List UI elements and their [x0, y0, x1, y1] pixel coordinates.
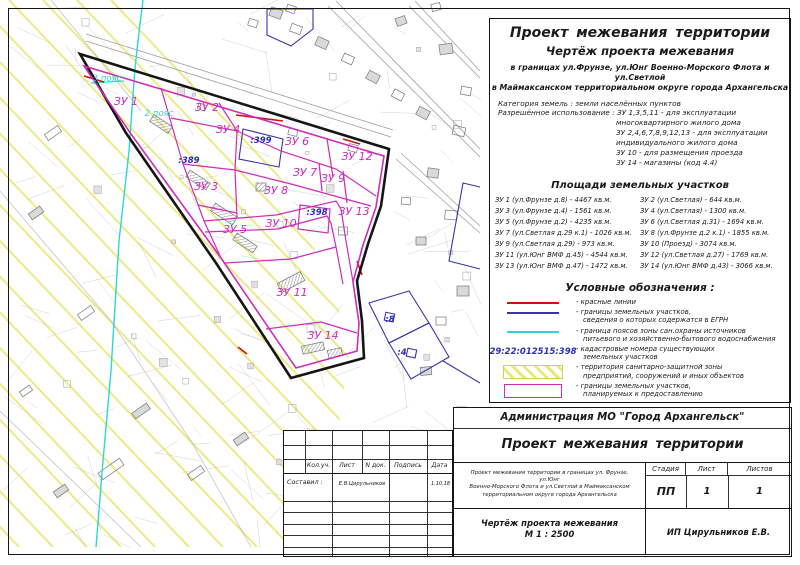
map-label-zu7: ЗУ 7: [293, 166, 317, 179]
date: 1.10.18: [428, 481, 453, 487]
legend-item: - красные линии: [490, 298, 790, 306]
permitted-use-line: ЗУ 2,4,6,7,8,9,12,13 - для эксплуатации: [498, 128, 790, 138]
map-label-zone2: 2 пояс: [145, 109, 174, 119]
page-subtitle: Чертёж проекта межевания: [490, 44, 790, 58]
areas-column-right: ЗУ 2 (ул.Светлая) - 644 кв.м.ЗУ 4 (ул.Св…: [640, 195, 785, 272]
map-label-zu4: ЗУ 4: [216, 123, 240, 136]
stage-value: ПП: [646, 476, 687, 508]
stage-grid: Стадия Лист Листов ПП 1 1: [646, 462, 791, 509]
sanitary-zone-swatch: [503, 365, 563, 379]
project-title: Проект межевания территории: [454, 428, 791, 463]
author-name: Е.В.Цирульников: [335, 481, 389, 487]
planned-parcel-swatch: [504, 384, 562, 398]
blue-line-swatch: [507, 312, 559, 314]
legend-item: - граница поясов зоны сан.охраны источни…: [490, 327, 790, 343]
col-header: Кол.уч.: [305, 462, 332, 469]
legend-title: Условные обозначения :: [490, 282, 790, 294]
permitted-use-line: ЗУ 10 - для размещения проезда: [498, 148, 790, 158]
firm-name: ИП Цирульников Е.В.: [646, 509, 791, 555]
map-label-zu8: ЗУ 8: [264, 184, 288, 197]
area-row: ЗУ 4 (ул.Светлая) - 1300 кв.м.: [640, 206, 785, 217]
area-row: ЗУ 10 (Проезд) - 3074 кв.м.: [640, 239, 785, 250]
areas-title: Площади земельных участков: [490, 180, 790, 191]
map-label-zu14: ЗУ 14: [307, 329, 338, 342]
area-row: ЗУ 1 (ул.Фрунзе д.8) - 4467 кв.м.: [495, 195, 640, 206]
col-header: Дата: [427, 462, 452, 469]
permitted-use-line: многоквартирного жилого дома: [498, 118, 790, 128]
map-label-zu10: ЗУ 10: [265, 217, 296, 230]
map-label-cad389: :389: [178, 156, 199, 166]
area-row: ЗУ 9 (ул.Светлая д.29) - 973 кв.м.: [495, 239, 640, 250]
cadastral-number-sample: 29:22:012515:398: [489, 347, 576, 357]
map-label-zu6: ЗУ 6: [285, 135, 309, 148]
organization: Администрация МО "Город Архангельск": [454, 408, 791, 429]
map-label-cad398: :398: [306, 208, 327, 218]
map-label-zu12: ЗУ 12: [341, 150, 372, 163]
page-title: Проект межевания территории: [490, 25, 790, 41]
sheets-label: Листов: [728, 462, 791, 476]
permitted-use-line: Разрешённое использование : ЗУ 1,3,5,11 …: [498, 108, 790, 118]
col-header: N док.: [362, 462, 389, 469]
map-label-zu13: ЗУ 13: [338, 205, 369, 218]
area-row: ЗУ 8 (ул.Фрунзе д.2 к.1) - 1855 кв.м.: [640, 228, 785, 239]
map-label-cad4: :4: [397, 348, 406, 358]
map-label-zu9: ЗУ 9: [321, 172, 345, 185]
area-row: ЗУ 5 (ул.Фрунзе д.2) - 4235 кв.м.: [495, 217, 640, 228]
area-row: ЗУ 7 (ул.Светлая д.29 к.1) - 1026 кв.м.: [495, 228, 640, 239]
project-description: Проект межевания территории в границах у…: [454, 462, 646, 509]
area-row: ЗУ 2 (ул.Светлая) - 644 кв.м.: [640, 195, 785, 206]
made-label: Составил :: [287, 478, 323, 486]
area-row: ЗУ 13 (ул.Юнг ВМФ д.47) - 1472 кв.м.: [495, 261, 640, 272]
map-label-zone3: 3 пояс: [93, 74, 122, 84]
drawing-name: Чертёж проекта межевания М 1 : 2500: [454, 509, 646, 555]
areas-column-left: ЗУ 1 (ул.Фрунзе д.8) - 4467 кв.м.ЗУ 3 (у…: [495, 195, 640, 272]
map-label-zu2: ЗУ 2: [195, 101, 219, 114]
area-row: ЗУ 14 (ул.Юнг ВМФ д.43) - 3066 кв.м.: [640, 261, 785, 272]
titleblock-main: Администрация МО "Город Архангельск" Про…: [453, 407, 792, 557]
stage-label: Стадия: [646, 462, 686, 476]
map-label-zu11: ЗУ 11: [276, 286, 307, 299]
permitted-use-line: ЗУ 14 - магазины (код 4.4): [498, 158, 790, 168]
legend: - красные линии- границы земельных участ…: [490, 298, 790, 398]
col-header: Лист: [332, 462, 362, 469]
titleblock-signature-table: Кол.уч. Лист N док. Подпись Дата Состави…: [283, 430, 453, 557]
area-row: ЗУ 11 (ул.Юнг ВМФ д.45) - 4544 кв.м.: [495, 250, 640, 261]
legend-item: - границы земельных участков,планируемых…: [490, 382, 790, 398]
permitted-use-line: индивидуального жилого дома: [498, 138, 790, 148]
land-category: Категория земель : земли населённых пунк…: [490, 99, 790, 108]
sheets-value: 1: [728, 476, 791, 508]
map-label-cad399: :399: [250, 136, 271, 146]
legend-item: 29:22:012515:398- кадастровые номера сущ…: [490, 345, 790, 361]
map-label-zu5: ЗУ 5: [223, 223, 247, 236]
legend-item: - территория санитарно-защитной зоныпред…: [490, 363, 790, 379]
cyan-line-swatch: [507, 331, 559, 333]
sheet-value: 1: [686, 476, 729, 508]
info-panel: Проект межевания территории Чертёж проек…: [489, 18, 791, 403]
sheet-label: Лист: [686, 462, 728, 476]
area-row: ЗУ 12 (ул.Светлая д.27) - 1769 кв.м.: [640, 250, 785, 261]
drawing-scale: М 1 : 2500: [454, 529, 645, 540]
areas-table: ЗУ 1 (ул.Фрунзе д.8) - 4467 кв.м.ЗУ 3 (у…: [490, 195, 790, 272]
map-label-zu1: ЗУ 1: [114, 95, 138, 108]
project-bounds: в границах ул.Фрунзе, ул.Юнг Военно-Морс…: [490, 63, 790, 93]
legend-item: - границы земельных участков,сведения о …: [490, 308, 790, 324]
area-row: ЗУ 6 (ул.Светлая д.31) - 1694 кв.м.: [640, 217, 785, 228]
permitted-use-list: Разрешённое использование : ЗУ 1,3,5,11 …: [490, 108, 790, 168]
col-header: Подпись: [389, 462, 427, 469]
area-row: ЗУ 3 (ул.Фрунзе д.4) - 1561 кв.м.: [495, 206, 640, 217]
map-label-zu3: ЗУ 3: [194, 180, 218, 193]
map-label-cad8: :8: [385, 315, 394, 325]
red-line-swatch: [507, 302, 559, 304]
